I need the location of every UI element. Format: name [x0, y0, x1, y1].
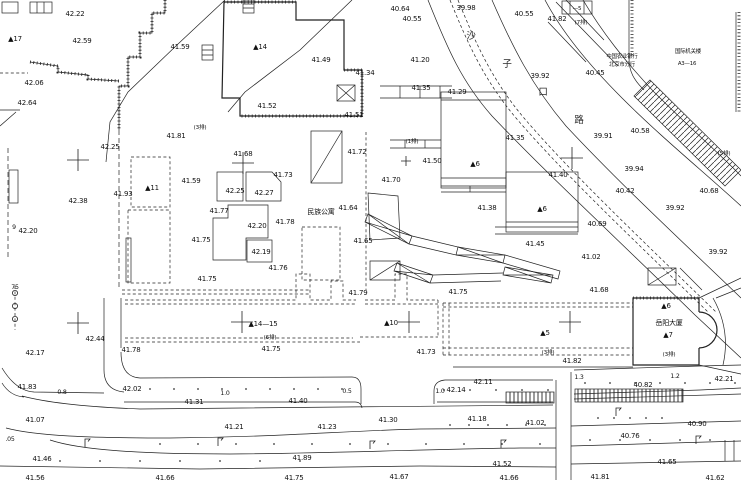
elevation-label: 41.81: [590, 473, 609, 480]
elevation-label: 39.92: [665, 204, 684, 212]
elevation-label: 41.75: [191, 236, 210, 244]
note-label: (5排): [718, 149, 731, 157]
survey-cross-icon: [559, 311, 581, 333]
elevation-label: 41.81: [166, 132, 185, 140]
elevation-label: 41.35: [411, 84, 430, 92]
dim-label: 1.0: [220, 390, 230, 397]
tree-dot-icon: [495, 389, 497, 391]
building-label: ▲5: [540, 329, 549, 337]
tree-dot-icon: [449, 424, 451, 426]
chinese-label: 民族公寓: [307, 207, 334, 216]
tree-dot-icon: [269, 388, 271, 390]
dim-label: 1.3: [574, 374, 584, 381]
building-label: ▲11: [145, 184, 159, 192]
elevation-label: 41.78: [275, 218, 294, 226]
tree-dot-icon: [609, 382, 611, 384]
elevation-label: 42.14: [446, 386, 466, 394]
elevation-label: 39.92: [708, 248, 727, 256]
lamps: [85, 408, 701, 449]
elevation-label: 41.56: [25, 474, 45, 480]
elevation-label: 40.90: [687, 420, 706, 428]
tree-dot-icon: [469, 389, 471, 391]
elevation-label: 41.35: [505, 134, 524, 142]
tree-dot-icon: [487, 424, 489, 426]
tree-dot-icon: [506, 424, 508, 426]
elevation-label: 42.38: [68, 197, 87, 205]
chinese_small-label: 中国农业银行: [606, 52, 638, 60]
survey-cross-icon: [67, 149, 89, 171]
elevation-label: 41.67: [389, 473, 408, 480]
elevation-label: 42.64: [17, 99, 37, 107]
tree-dot-icon: [734, 382, 736, 384]
elevation-label: 41.02: [581, 253, 600, 261]
labels-dims: 0.81.00.51.01.31.2.05759: [5, 224, 680, 443]
street_char-label: 口: [538, 87, 547, 98]
elevation-label: 41.64: [338, 204, 358, 212]
street-linework: [0, 286, 741, 480]
chinese_small-label: 国际机关楼: [675, 47, 702, 55]
elevation-label: 42.22: [65, 10, 84, 18]
elevation-label: 40.58: [630, 127, 649, 135]
tree-dot-icon: [179, 460, 181, 462]
labels-chinese: 民族公寓岳阳大厦: [307, 207, 682, 327]
tree-dot-icon: [709, 439, 711, 441]
building-label: ▲6: [661, 302, 671, 310]
elevation-label: 40.82: [633, 381, 652, 389]
chinese_small-label: 北京市分行: [609, 60, 636, 68]
tree-dot-icon: [259, 460, 261, 462]
tree-dot-icon: [597, 417, 599, 419]
tree-dot-icon: [613, 417, 615, 419]
elevation-label: 41.82: [562, 357, 581, 365]
tree-dot-icon: [293, 388, 295, 390]
tree-dot-icon: [235, 443, 237, 445]
tree-dot-icon: [661, 417, 663, 419]
tree-dot-icon: [387, 443, 389, 445]
tree-dot-icon: [645, 417, 647, 419]
elevation-label: 42.25: [100, 143, 119, 151]
tree-dot-icon: [159, 443, 161, 445]
elevation-label: 41.75: [448, 288, 467, 296]
elevation-label: 39.98: [456, 4, 475, 12]
elevation-label: 41.93: [113, 190, 132, 198]
elevation-label: 41.89: [292, 454, 311, 462]
street_char-label: 沙: [466, 31, 476, 42]
tree-dot-icon: [317, 388, 319, 390]
tree-dot-icon: [425, 443, 427, 445]
streetlamp-icon: [370, 441, 375, 449]
elevation-label: 42.19: [251, 248, 270, 256]
tree-dot-icon: [463, 443, 465, 445]
dim-label: 1.0: [435, 388, 445, 395]
elevation-label: 41.59: [170, 43, 189, 51]
dim-label: 0.8: [57, 389, 67, 396]
note-label: (3排): [542, 348, 555, 356]
elevation-label: 42.21: [714, 375, 733, 383]
elevation-label: 41.68: [589, 286, 608, 294]
dim-label: 1.2: [670, 373, 680, 380]
elevation-label: 42.20: [18, 227, 37, 235]
elevation-label: 41.82: [547, 15, 566, 23]
elevation-label: 41.50: [422, 157, 441, 165]
note-label: (3排): [663, 350, 676, 358]
chinese-label: 岳阳大厦: [655, 318, 682, 327]
dim-label: 9: [12, 224, 16, 231]
tree-dot-icon: [547, 389, 549, 391]
dim-label: 75: [11, 284, 19, 291]
tree-dot-icon: [245, 388, 247, 390]
elevation-label: 41.40: [288, 397, 307, 405]
elevation-label: 40.55: [514, 10, 533, 18]
elevation-label: 41.75: [284, 474, 303, 480]
tree-dot-icon: [589, 439, 591, 441]
street_char-label: 子: [502, 59, 512, 70]
elevation-label: 41.18: [467, 415, 486, 423]
tree-dot-icon: [273, 443, 275, 445]
elevation-label: 40.68: [699, 187, 718, 195]
tree-dot-icon: [649, 439, 651, 441]
dim-label: 0.5: [342, 388, 352, 395]
tree-dot-icon: [311, 443, 313, 445]
elevation-label: 41.83: [17, 383, 36, 391]
note-label: (3排): [194, 123, 207, 131]
elevation-label: 42.02: [122, 385, 141, 393]
elevation-label: 41.78: [121, 346, 140, 354]
streetlamp-icon: [616, 408, 621, 416]
elevation-label: 41.62: [705, 474, 724, 480]
elevation-label: 41.02: [525, 419, 544, 427]
tree-dot-icon: [149, 388, 151, 390]
elevation-label: 41.46: [32, 455, 52, 463]
building-label: ▲7: [663, 331, 672, 339]
elevation-label: 42.11: [473, 378, 492, 386]
tree-dot-icon: [468, 424, 470, 426]
plan-svg: 42.2242.5941.5942.0642.6440.6440.5539.98…: [0, 0, 741, 480]
labels-notes: (3排)(1排)(5排)(6排)(3排)(3排)(7排)—5: [194, 6, 731, 358]
elevation-label: 40.45: [585, 69, 604, 77]
elevation-label: 41.68: [233, 150, 252, 158]
tree-dot-icon: [679, 439, 681, 441]
note-label: (6排): [264, 333, 277, 341]
elevation-label: 41.73: [416, 348, 435, 356]
buildings-linework: [122, 0, 741, 374]
tree-dot-icon: [349, 443, 351, 445]
note-label: (1排): [406, 137, 419, 145]
tree-dot-icon: [659, 382, 661, 384]
survey-cross-small-icon: [401, 156, 411, 166]
tree-dot-icon: [99, 460, 101, 462]
elevation-label: 41.72: [347, 148, 366, 156]
tree-dot-icon: [684, 382, 686, 384]
tree-dot-icon: [501, 443, 503, 445]
elevation-label: 41.38: [477, 204, 496, 212]
elevation-label: 42.27: [254, 189, 273, 197]
elevation-label: 40.64: [390, 5, 410, 13]
tree-dot-icon: [197, 388, 199, 390]
tree-dot-icon: [539, 443, 541, 445]
tree-dot-icon: [59, 460, 61, 462]
tree-dot-icon: [219, 460, 221, 462]
elevation-label: 41.34: [355, 69, 375, 77]
elevation-label: 41.70: [381, 176, 400, 184]
survey-cross-icon: [67, 312, 89, 334]
elevation-label: 41.20: [410, 56, 429, 64]
tree-dot-icon: [709, 382, 711, 384]
elevation-label: 41.07: [25, 416, 44, 424]
elevation-label: 42.20: [247, 222, 266, 230]
tree-dot-icon: [629, 417, 631, 419]
elevation-label: 41.51: [344, 111, 363, 119]
elevation-label: 41.49: [311, 56, 330, 64]
tree-dot-icon: [521, 389, 523, 391]
survey-cross-icon: [398, 311, 420, 333]
streetlamp-icon: [218, 438, 223, 446]
elevation-label: 41.65: [353, 237, 372, 245]
elevation-label: 42.59: [72, 37, 91, 45]
survey-crosses: [67, 147, 583, 334]
elevation-label: 40.69: [587, 220, 606, 228]
elevation-label: 40.55: [402, 15, 421, 23]
elevation-label: 41.66: [155, 474, 175, 480]
building-label: ▲14—15: [249, 320, 278, 328]
elevation-label: 41.52: [492, 460, 511, 468]
elevation-label: 42.06: [24, 79, 44, 87]
site-plan: 42.2242.5941.5942.0642.6440.6440.5539.98…: [0, 0, 741, 480]
survey-cross-icon: [561, 147, 583, 169]
elevation-label: 41.21: [224, 423, 243, 431]
elevation-label: 40.76: [620, 432, 640, 440]
elevation-label: 41.31: [184, 398, 203, 406]
streetlamp-icon: [696, 436, 701, 444]
elevation-label: 39.92: [530, 72, 549, 80]
elevation-label: 40.42: [615, 187, 634, 195]
elevation-label: 41.40: [548, 171, 567, 179]
elevation-label: 41.76: [268, 264, 288, 272]
elevation-label: 41.77: [209, 207, 228, 215]
tree-dot-icon: [173, 388, 175, 390]
tree-dot-icon: [139, 460, 141, 462]
street_char-label: 路: [574, 114, 584, 126]
elevation-label: 39.94: [624, 165, 644, 173]
building-label: ▲10: [384, 319, 398, 327]
tree-dot-icon: [584, 382, 586, 384]
building-label: ▲14: [253, 43, 267, 51]
elevation-label: 42.25: [225, 187, 244, 195]
note-label: —5: [573, 6, 582, 12]
elevation-label: 41.30: [378, 416, 397, 424]
elevation-label: 41.52: [257, 102, 276, 110]
labels-street_chars: 沙子口路: [466, 31, 584, 126]
elevation-label: 41.66: [499, 474, 519, 480]
building-label: ▲6: [537, 205, 547, 213]
chinese_small-label: A3—16: [678, 61, 697, 67]
building-label: ▲6: [470, 160, 480, 168]
elevation-label: 41.73: [273, 171, 292, 179]
tree-dot-icon: [197, 443, 199, 445]
elevation-label: 41.45: [525, 240, 544, 248]
streetlamp-icon: [85, 439, 90, 447]
building-label: ▲17: [8, 35, 22, 43]
elevation-label: 41.75: [197, 275, 216, 283]
elevation-label: 41.59: [181, 177, 200, 185]
elevation-label: 41.75: [261, 345, 280, 353]
elevation-label: 41.65: [657, 458, 676, 466]
dim-label: .05: [5, 436, 15, 443]
elevation-label: 41.29: [447, 88, 466, 96]
labels-chinese_small: 中国农业银行北京市分行国际机关楼A3—16: [606, 47, 701, 68]
note-label: (7排): [575, 18, 588, 26]
elevation-label: 39.91: [593, 132, 612, 140]
elevation-label: 41.79: [348, 289, 367, 297]
elevation-label: 42.17: [25, 349, 44, 357]
elevation-label: 41.23: [317, 423, 336, 431]
elevation-label: 42.44: [85, 335, 105, 343]
